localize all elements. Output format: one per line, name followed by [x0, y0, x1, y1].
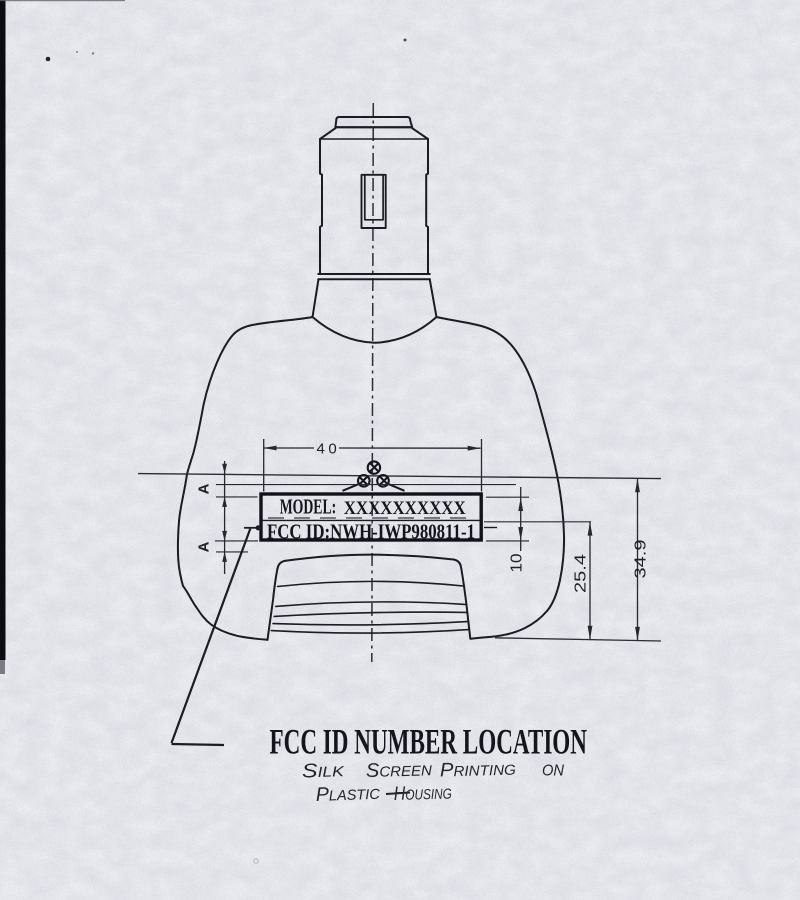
svg-text:ON: ON — [542, 763, 565, 780]
svg-text:10: 10 — [509, 553, 526, 572]
svg-text:34.9: 34.9 — [633, 539, 650, 578]
svg-text:25.4: 25.4 — [573, 554, 590, 593]
svg-text:A: A — [195, 541, 212, 552]
svg-text:FCC ID NUMBER LOCATION: FCC ID NUMBER LOCATION — [270, 722, 588, 762]
svg-text:FCC ID:NWH-IWP980811-1: FCC ID:NWH-IWP980811-1 — [267, 520, 475, 544]
svg-text:40: 40 — [317, 441, 341, 458]
svg-text:A: A — [195, 483, 212, 494]
svg-text:XXXXXXXXXX: XXXXXXXXXX — [344, 499, 467, 519]
svg-text:MODEL:: MODEL: — [280, 495, 337, 519]
